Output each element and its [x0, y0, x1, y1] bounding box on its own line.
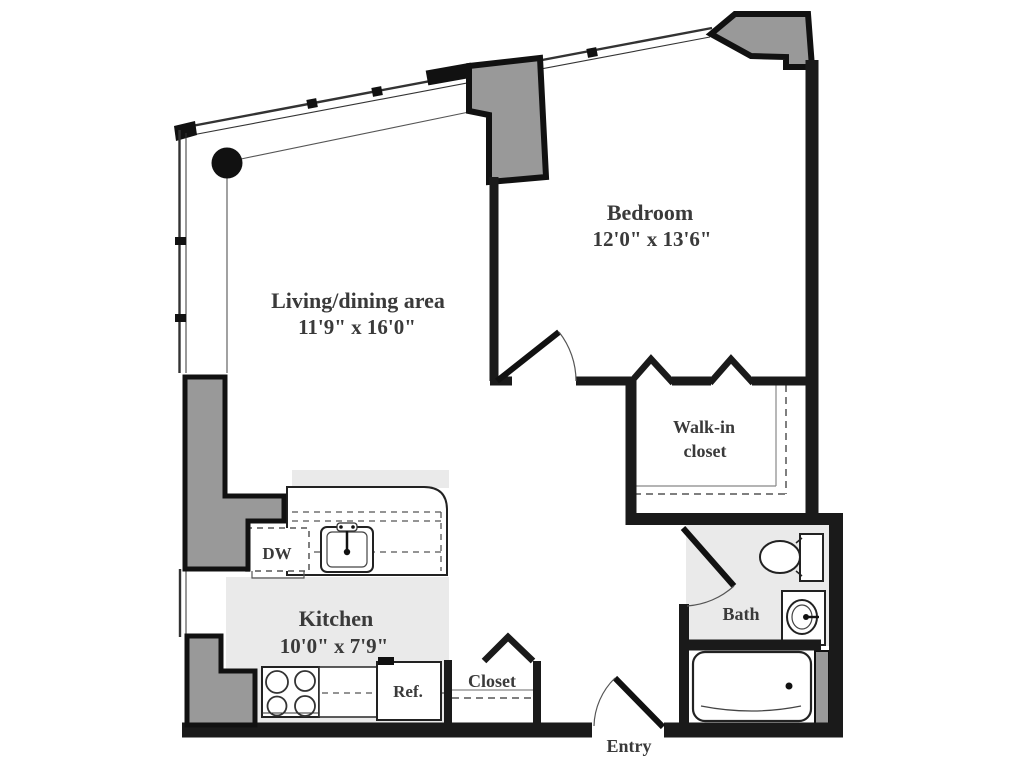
walk-in-closet-shelving	[634, 385, 786, 494]
vanity-sink	[782, 591, 825, 645]
closet-shelf	[452, 690, 533, 698]
column-top-middle	[469, 58, 546, 182]
door-swing-arc	[559, 332, 576, 381]
floor-plan: Living/dining area 11'9" x 16'0" Bedroom…	[0, 0, 1024, 768]
room-walk-in-closet: Walk-in closet	[673, 417, 735, 461]
mullion-icon	[586, 47, 598, 58]
kitchen-dims: 10'0" x 7'9"	[280, 634, 389, 658]
bedroom-door	[497, 332, 576, 381]
opening-chevron-icon	[484, 637, 533, 661]
opening-chevron-icon	[710, 359, 753, 383]
door-swing-arc	[594, 678, 615, 726]
kitchen-sink	[321, 523, 373, 572]
bathtub	[693, 652, 811, 721]
wall-closet-right	[533, 661, 541, 724]
column-top-right	[711, 14, 812, 67]
window-wall-top	[174, 28, 712, 141]
stove-4-burner	[262, 667, 319, 717]
closet-label: Closet	[468, 671, 516, 691]
mullion-icon	[175, 237, 186, 245]
refrigerator-label: Ref.	[393, 682, 423, 701]
mullion-icon	[371, 86, 383, 97]
room-living-dining: Living/dining area 11'9" x 16'0"	[271, 288, 445, 339]
bedroom-label: Bedroom	[607, 200, 693, 225]
wall-closet-left	[444, 660, 452, 724]
room-bedroom: Bedroom 12'0" x 13'6"	[593, 200, 712, 251]
base-cabinet	[319, 667, 377, 717]
floor-plan-drawing: Living/dining area 11'9" x 16'0" Bedroom…	[0, 0, 1024, 768]
entry-label: Entry	[607, 736, 652, 756]
bath-label: Bath	[722, 604, 759, 624]
wall-stub	[427, 70, 472, 78]
mullion-icon	[175, 314, 186, 322]
kitchen-label: Kitchen	[299, 606, 374, 631]
tub-drain-icon	[786, 683, 793, 690]
living-room-label: Living/dining area	[271, 288, 445, 313]
living-room-dims: 11'9" x 16'0"	[298, 315, 416, 339]
walk-in-closet-label-line1: Walk-in	[673, 417, 735, 437]
dishwasher-label: DW	[262, 544, 291, 563]
walk-in-closet-label-line2: closet	[684, 441, 727, 461]
round-column	[212, 148, 243, 179]
mullion-icon	[306, 98, 318, 109]
bedroom-dims: 12'0" x 13'6"	[593, 227, 712, 251]
wall-shading-strip	[815, 651, 829, 724]
entry-door	[594, 678, 663, 727]
kitchen-upper-cabinet-strip	[292, 470, 449, 488]
